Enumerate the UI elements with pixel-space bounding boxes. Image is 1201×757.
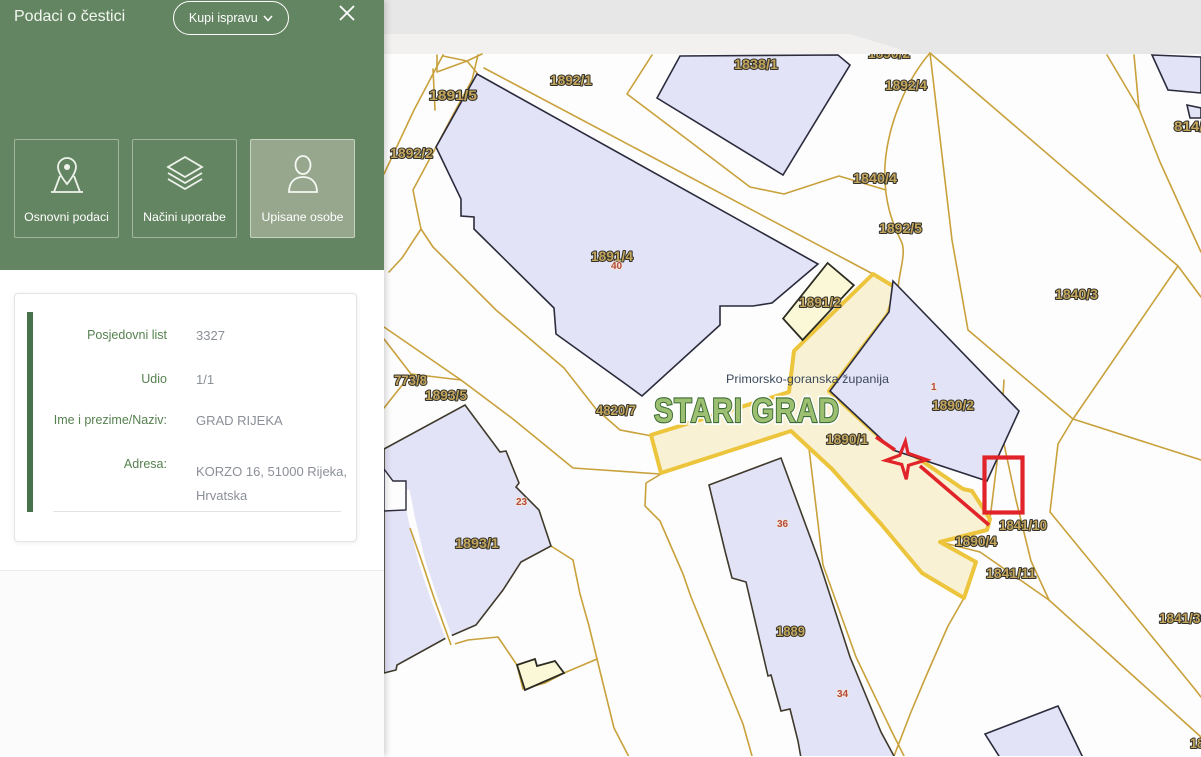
svg-text:1841/30: 1841/30 xyxy=(1159,611,1201,626)
svg-text:1891/2: 1891/2 xyxy=(799,295,841,310)
svg-text:1841: 1841 xyxy=(1190,736,1201,751)
svg-text:814/1: 814/1 xyxy=(1174,119,1201,134)
svg-text:1838/1: 1838/1 xyxy=(734,57,779,72)
svg-text:1890/1: 1890/1 xyxy=(826,432,868,447)
svg-text:1840/3: 1840/3 xyxy=(1055,287,1099,302)
svg-text:1891/5: 1891/5 xyxy=(429,88,478,103)
svg-text:1893/1: 1893/1 xyxy=(455,536,500,551)
svg-text:1841/11: 1841/11 xyxy=(986,566,1037,581)
svg-text:1890/4: 1890/4 xyxy=(955,534,997,549)
svg-text:1841/10: 1841/10 xyxy=(999,518,1047,533)
svg-text:36: 36 xyxy=(777,519,789,530)
svg-text:STARI GRAD: STARI GRAD xyxy=(654,392,840,430)
svg-text:1890/2: 1890/2 xyxy=(932,398,974,413)
svg-text:1892/2: 1892/2 xyxy=(390,146,433,161)
svg-text:34: 34 xyxy=(837,689,849,700)
svg-text:1892/1: 1892/1 xyxy=(550,73,592,88)
svg-text:4820/7: 4820/7 xyxy=(596,403,636,418)
svg-text:773/8: 773/8 xyxy=(394,373,427,388)
svg-text:1892/5: 1892/5 xyxy=(879,221,923,236)
svg-text:1840/4: 1840/4 xyxy=(853,171,898,186)
svg-text:23: 23 xyxy=(516,497,528,508)
svg-text:1893/5: 1893/5 xyxy=(425,388,467,403)
svg-text:1892/4: 1892/4 xyxy=(885,78,927,93)
svg-text:1: 1 xyxy=(931,382,937,393)
svg-text:Primorsko-goranska županija: Primorsko-goranska županija xyxy=(726,372,889,386)
svg-text:1889: 1889 xyxy=(776,624,805,639)
svg-text:40: 40 xyxy=(611,261,623,272)
